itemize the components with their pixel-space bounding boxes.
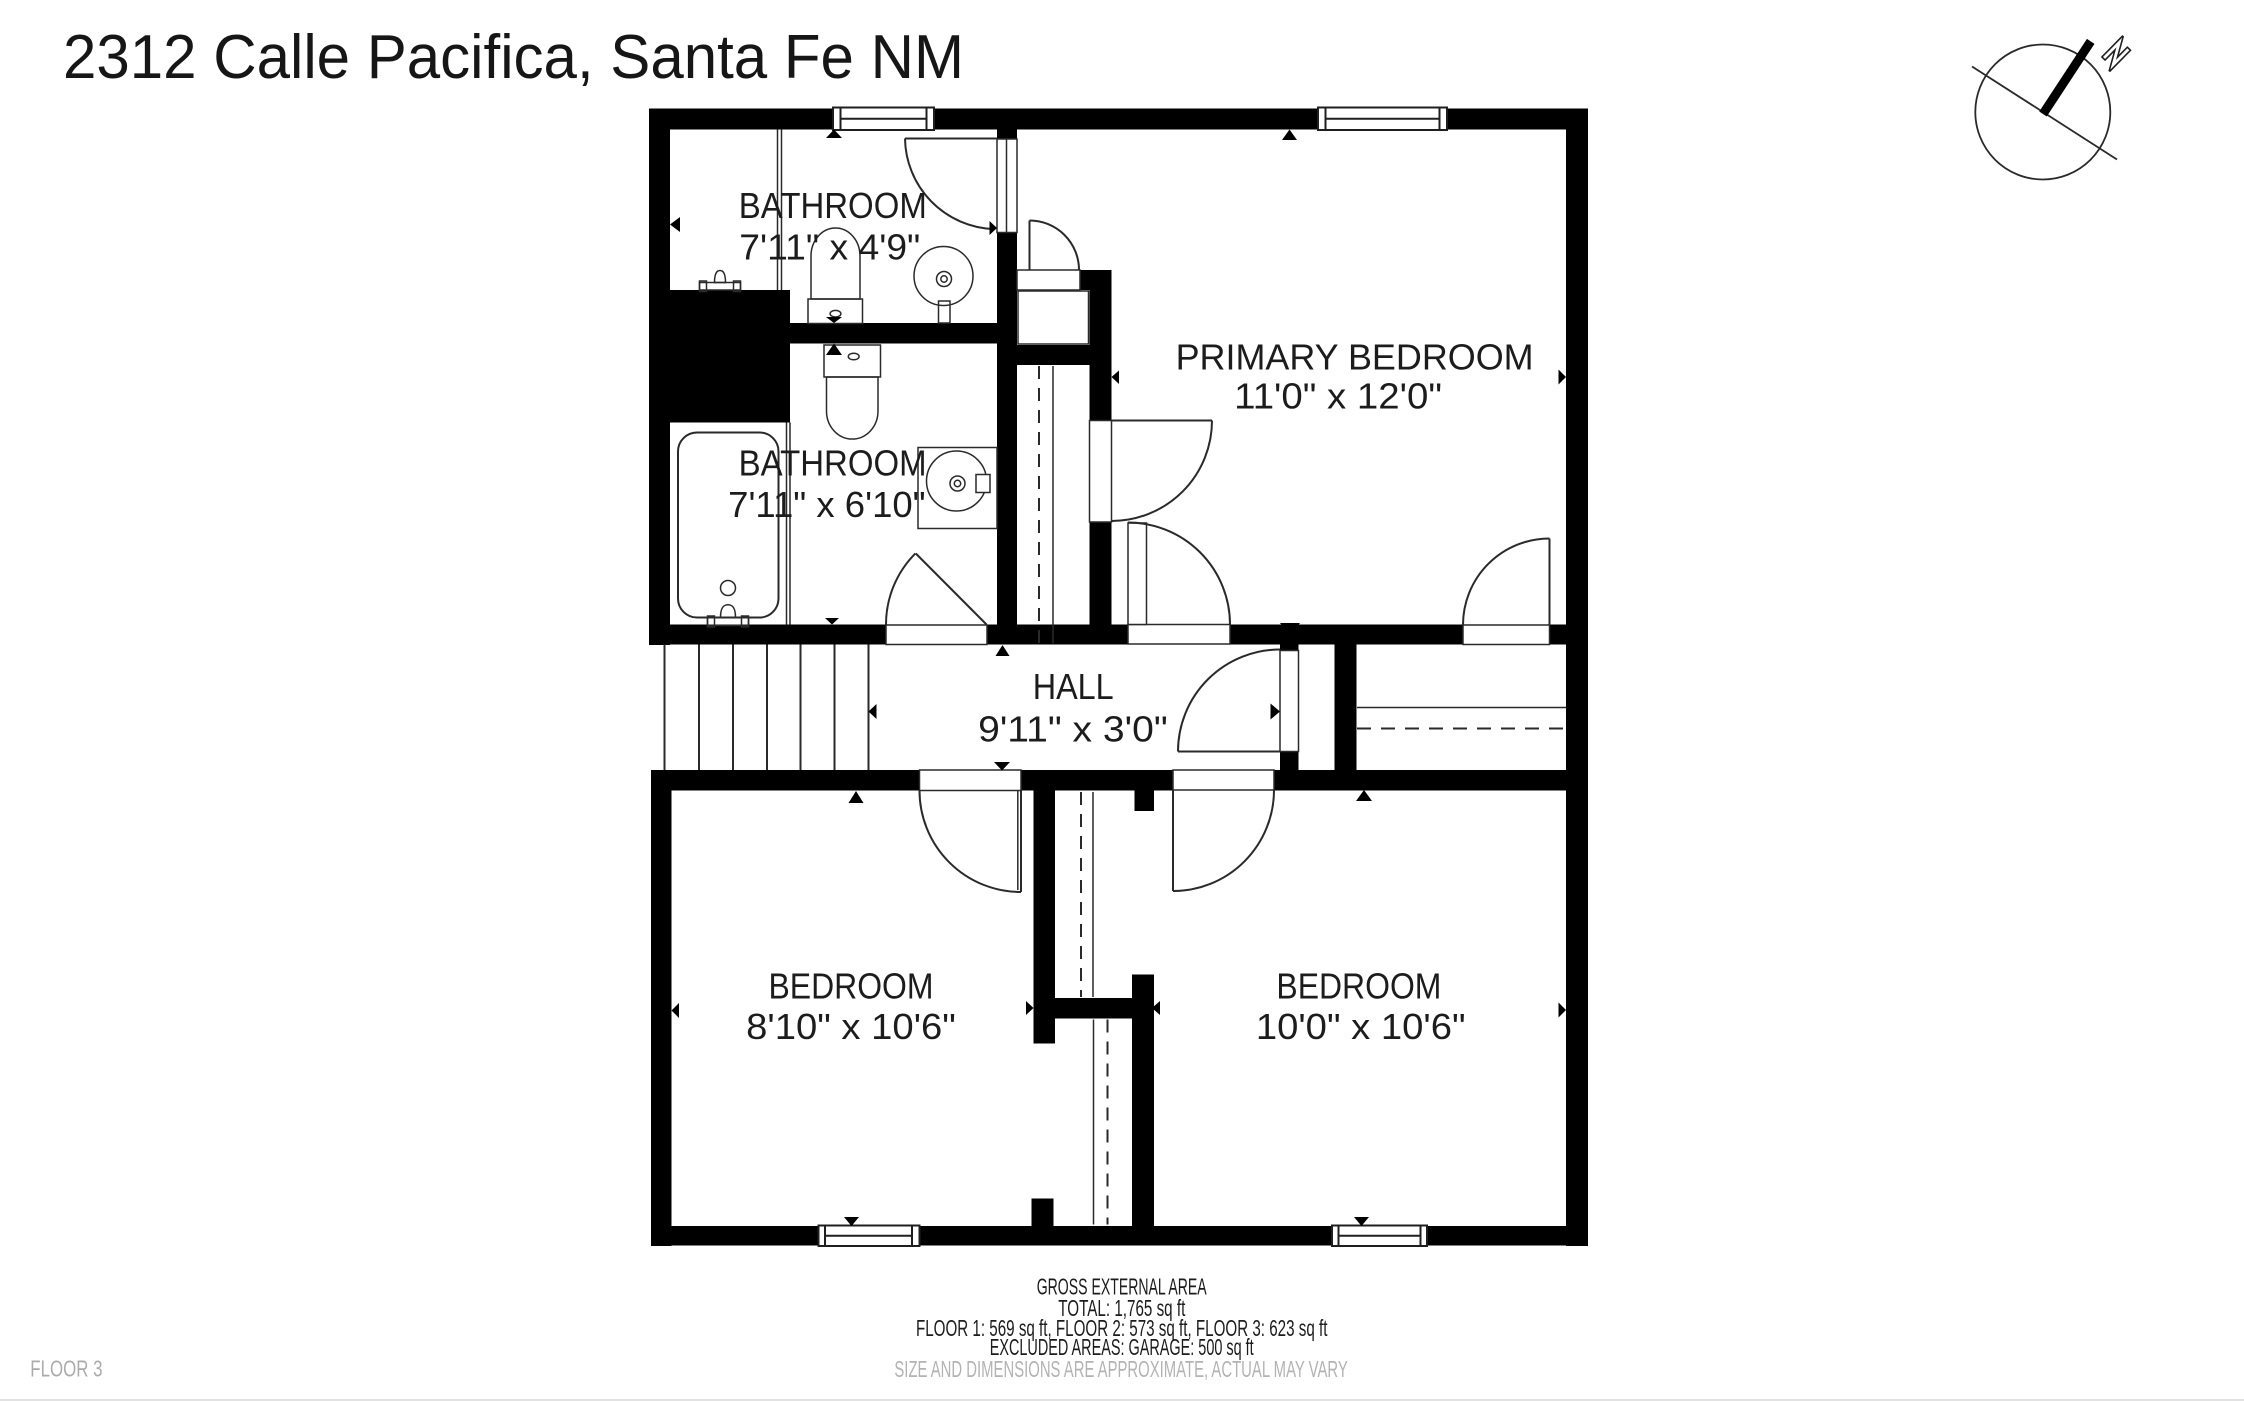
svg-text:BATHROOM: BATHROOM — [739, 185, 927, 226]
svg-text:2312 Calle Pacifica, Santa Fe: 2312 Calle Pacifica, Santa Fe NM — [63, 23, 964, 92]
svg-text:8'10" x 10'6": 8'10" x 10'6" — [746, 1006, 956, 1047]
svg-text:HALL: HALL — [1033, 666, 1114, 707]
svg-text:11'0" x 12'0": 11'0" x 12'0" — [1234, 376, 1442, 417]
svg-text:FLOOR 3: FLOOR 3 — [30, 1356, 102, 1382]
svg-text:10'0" x 10'6": 10'0" x 10'6" — [1256, 1006, 1466, 1047]
svg-text:7'11" x 6'10": 7'11" x 6'10" — [728, 484, 926, 525]
svg-text:BEDROOM: BEDROOM — [1276, 965, 1441, 1006]
svg-text:BEDROOM: BEDROOM — [769, 965, 934, 1006]
svg-text:BATHROOM: BATHROOM — [739, 443, 927, 484]
svg-text:PRIMARY BEDROOM: PRIMARY BEDROOM — [1176, 336, 1534, 377]
svg-text:7'11" x 4'9": 7'11" x 4'9" — [739, 226, 920, 267]
svg-text:9'11" x 3'0": 9'11" x 3'0" — [978, 709, 1168, 750]
svg-text:SIZE AND DIMENSIONS ARE APPROX: SIZE AND DIMENSIONS ARE APPROXIMATE, ACT… — [894, 1356, 1347, 1382]
